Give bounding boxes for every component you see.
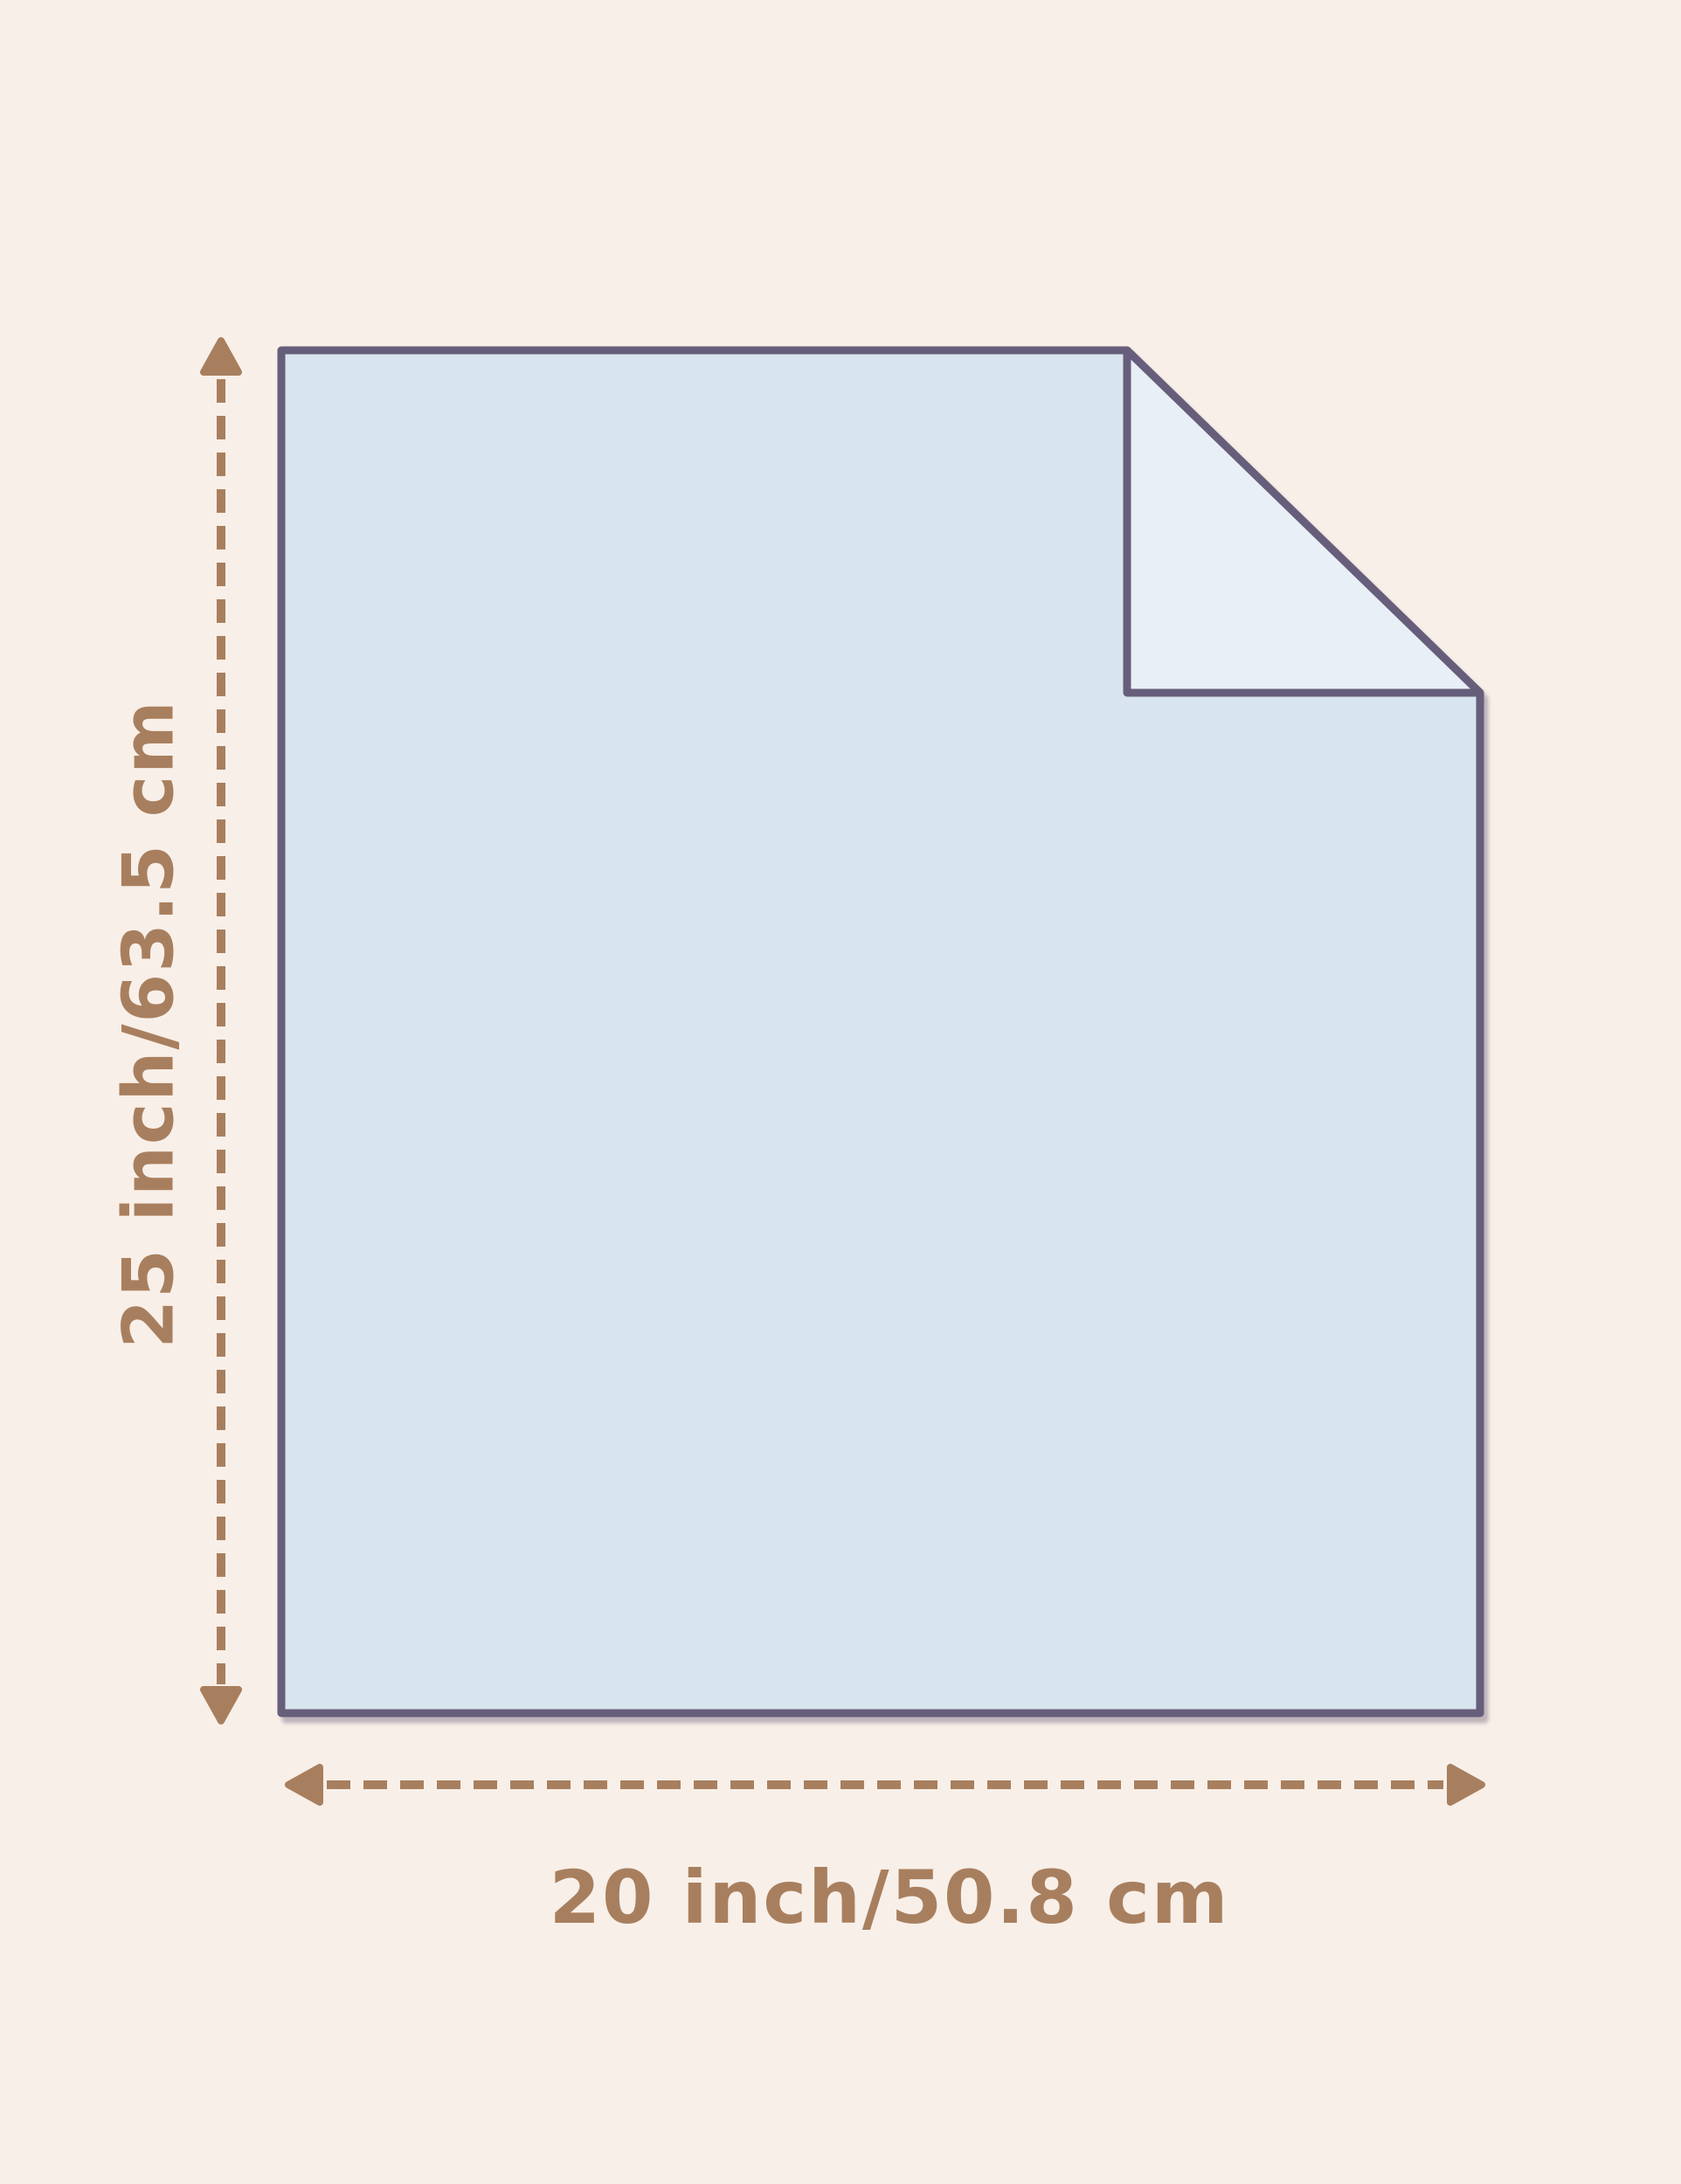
arrowhead-left-icon [288,1767,320,1802]
arrowhead-down-icon [204,1690,239,1721]
height-dimension-arrow [204,341,239,1721]
diagram-canvas: 25 inch/63.5 cm 20 inch/50.8 cm [0,0,1681,2184]
height-dimension-label: 25 inch/63.5 cm [108,699,190,1348]
width-dimension-label: 20 inch/50.8 cm [550,1855,1230,1940]
width-dimension-arrow [288,1767,1482,1802]
arrowhead-up-icon [204,341,239,372]
sheet-shape-group [281,350,1480,1713]
folded-corner [1127,350,1480,693]
arrowhead-right-icon [1450,1767,1482,1802]
